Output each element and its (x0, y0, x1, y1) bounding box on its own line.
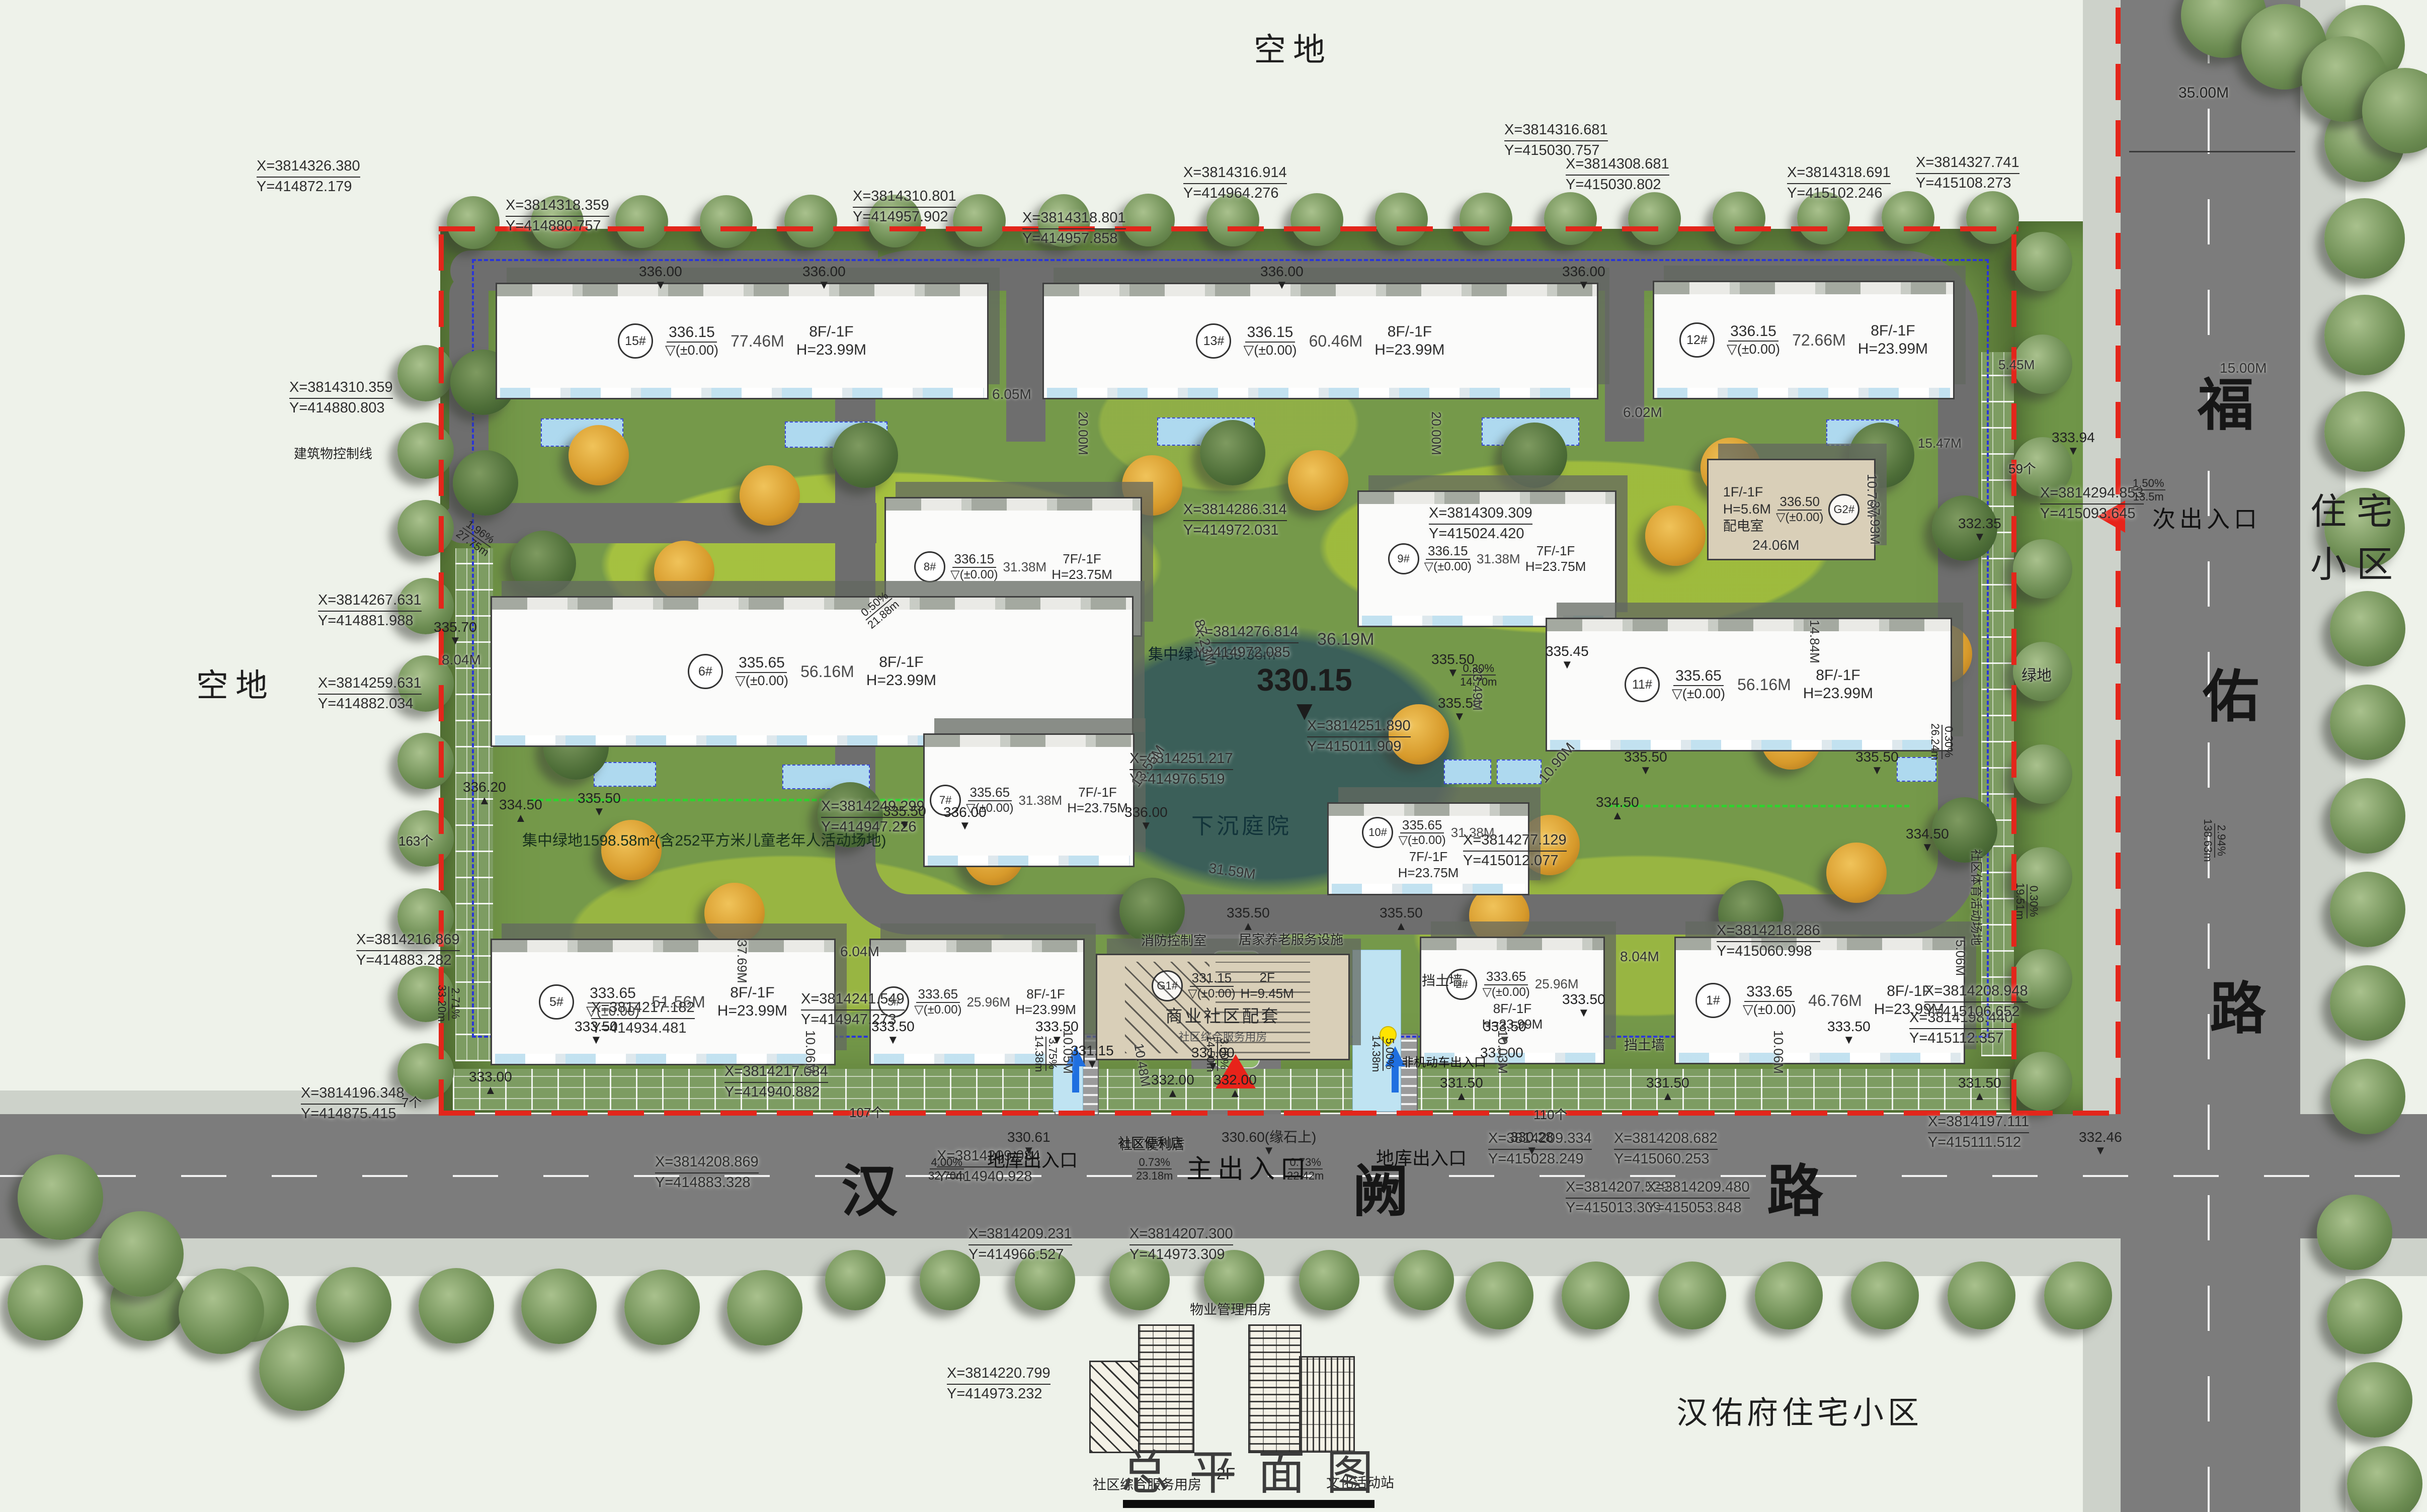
dimension-label: 14.84M (1807, 620, 1822, 663)
triangle-icon: ▲ (1958, 1090, 2001, 1103)
coord-x: X=3814251.890 (1307, 717, 1411, 737)
slope-annotation: 0.30%26.24m (1928, 723, 1955, 760)
label-community-store: 社区便利店 (1118, 1133, 1183, 1151)
building-height: H=5.6M (1723, 501, 1771, 517)
coord-x: X=3814326.380 (257, 157, 360, 178)
tree-icon (1966, 191, 2019, 244)
triangle-icon: ▲ (469, 1084, 512, 1097)
coordinate-callout: X=3814310.801Y=414957.902 (853, 187, 956, 226)
label-residential-right: 住宅小区 (2310, 482, 2427, 587)
tree-icon (521, 1269, 597, 1344)
building-height: H=23.99M (717, 1002, 787, 1019)
autumn-tree-icon (704, 883, 765, 943)
legend-swatch-property-1 (1138, 1324, 1194, 1453)
tree-icon (2317, 1195, 2392, 1270)
coord-x: X=3814316.681 (1504, 121, 1608, 141)
spot-level-value: 330.60(缘石上) (1222, 1129, 1316, 1145)
coordinate-callout: X=3814218.286Y=415060.998 (1717, 921, 1820, 961)
coord-y: Y=415012.077 (1463, 852, 1567, 871)
spot-level-value: 330.28 (1510, 1129, 1554, 1145)
dimension-label: 6.02M (1623, 404, 1662, 421)
coord-x: X=3814310.359 (289, 378, 393, 399)
autumn-tree-icon (1288, 450, 1348, 511)
tree-icon (397, 733, 454, 789)
coordinate-callout: X=3814216.869Y=414883.282 (356, 931, 460, 970)
tree-icon (2324, 198, 2405, 279)
spot-level: 331.50▲ (1646, 1075, 1689, 1103)
note-label: 物业管理用房 (1190, 1299, 1271, 1318)
slope-annotation: 0.73%23.18m (1136, 1156, 1173, 1183)
coordinate-callout: X=3814326.380Y=414872.179 (257, 157, 360, 196)
evergreen-tree-icon (1200, 420, 1265, 485)
building-zero-level: ▽(±0.00) (1482, 985, 1529, 999)
tree-icon (1122, 194, 1175, 246)
building-number-badge: 12# (1679, 322, 1715, 358)
dimension-label: 37.93M (1867, 501, 1883, 545)
building-zero-level: ▽(±0.00) (1727, 342, 1780, 357)
coord-x: X=3814286.314 (1183, 500, 1287, 521)
tree-icon (2330, 778, 2405, 854)
coordinate-callout: X=3814318.359Y=414880.757 (506, 196, 609, 235)
building-elevation: 333.65 (1484, 969, 1528, 985)
coord-x: X=3814207.300 (1129, 1225, 1233, 1245)
coord-y: Y=415060.253 (1614, 1150, 1718, 1169)
building-number-badge: 5# (539, 984, 574, 1020)
spot-level-value: 332.00 (1151, 1072, 1194, 1087)
coordinate-callout: X=3814220.799Y=414973.232 (947, 1364, 1050, 1403)
coord-x: X=3814217.182 (591, 998, 695, 1019)
slope-length: 138.63m (2201, 819, 2214, 862)
tree-icon (447, 196, 500, 249)
spot-level-value: 335.50 (883, 803, 926, 819)
road-name-fu: 福 (2198, 360, 2254, 441)
coord-y: Y=414966.527 (968, 1245, 1072, 1265)
triangle-icon: ▼ (1124, 819, 1168, 832)
building-zero-level: ▽(±0.00) (1672, 686, 1725, 702)
building-floors: 7F/-1F (1063, 551, 1101, 566)
coordinate-callout: X=3814327.741Y=415108.273 (1916, 153, 2019, 193)
autumn-tree-icon (1645, 506, 1706, 566)
spot-level: 333.50▼ (871, 1019, 915, 1047)
tree-icon (1628, 192, 1681, 245)
building-length: 56.16M (1737, 676, 1791, 694)
tree-icon (2013, 1052, 2072, 1111)
tree-icon (2044, 1262, 2112, 1329)
road-fuyou (2121, 0, 2300, 1512)
triangle-icon: ▲ (499, 812, 542, 824)
coord-y: Y=414940.882 (724, 1083, 828, 1102)
triangle-icon: ▼ (1546, 658, 1589, 671)
tree-icon (1562, 1262, 1630, 1329)
road-centerline-right (2208, 0, 2210, 1512)
spot-level-value: 336.00 (1260, 264, 1304, 279)
coord-x: X=3814241.549 (801, 990, 905, 1011)
coord-x: X=3814209.480 (1646, 1178, 1750, 1199)
coord-y: Y=414957.858 (1022, 229, 1126, 248)
note-label: 挡土墙 (1422, 970, 1463, 989)
dimension-label: 6.04M (840, 944, 879, 960)
triangle-icon: ▲ (1151, 1087, 1194, 1100)
tree-icon (2347, 1446, 2422, 1512)
road-name-lu: 路 (1767, 1146, 1823, 1227)
building-length: 77.46M (731, 332, 784, 351)
coord-x: X=3814310.801 (853, 187, 956, 208)
building-height: H=23.75M (1525, 559, 1586, 574)
triangle-icon: ▼ (2079, 1144, 2122, 1157)
note-label: 消防控制室 (1141, 931, 1206, 949)
spot-level: 335.50▲ (1227, 905, 1270, 933)
spot-level-value: 334.50 (1596, 794, 1639, 810)
triangle-icon: ▼ (1958, 531, 2001, 543)
coord-y: Y=415053.848 (1646, 1199, 1750, 1218)
building-number-badge: 8# (914, 551, 945, 582)
building-elevation: 336.15 (1426, 544, 1470, 560)
tree-icon (615, 195, 668, 248)
tree-icon (1544, 192, 1597, 245)
tree-icon (1713, 192, 1765, 244)
building-floors: 8F/-1F (879, 654, 923, 670)
tree-icon (2013, 539, 2072, 599)
spot-level-value: 333.94 (2052, 430, 2095, 445)
note-label: 7个 (401, 1093, 422, 1111)
coordinate-callout: X=3814308.681Y=415030.802 (1566, 155, 1669, 194)
evergreen-tree-icon (1502, 423, 1567, 488)
spot-level-value: 335.50 (578, 790, 621, 806)
coord-y: Y=414957.902 (853, 208, 956, 227)
building-number-badge: G2# (1828, 494, 1859, 525)
tree-icon (825, 1250, 885, 1310)
building-height: H=23.99M (1015, 1002, 1076, 1017)
building-elevation: 333.65 (1744, 983, 1795, 1002)
coord-y: Y=414964.276 (1183, 184, 1287, 203)
spot-level: 333.94▼ (2052, 430, 2095, 458)
spot-level-value: 334.50 (499, 797, 542, 812)
triangle-icon: ▼ (1510, 1144, 1554, 1157)
coord-x: X=3814218.286 (1717, 921, 1820, 942)
spot-level: 336.00▼ (802, 264, 846, 292)
building-length: 56.16M (800, 662, 854, 681)
building-elevation: 333.65 (916, 987, 960, 1003)
building-length: 31.38M (1018, 793, 1062, 808)
slope-percent: 2.94% (2214, 823, 2228, 858)
building-length: 72.66M (1792, 331, 1846, 350)
tree-icon (1466, 1262, 1533, 1329)
water-feature (1897, 757, 1936, 782)
coordinate-callout: X=3814259.631Y=414882.034 (318, 674, 422, 713)
spot-level-330-15: 330.15▼ (1257, 664, 1352, 725)
slope-annotation: 1.50%13.5m (2131, 477, 2165, 503)
coord-y: Y=415108.273 (1916, 174, 2019, 193)
spot-level: 331.15▼ (1071, 1043, 1114, 1071)
red-boundary-top (439, 226, 2018, 231)
triangle-icon: ▼ (943, 819, 987, 832)
tree-icon (397, 423, 454, 479)
label-hanyoufu-district: 汉佑府住宅小区 (1676, 1387, 1923, 1433)
building-floors: 8F/-1F (1026, 986, 1065, 1001)
tree-icon (8, 1265, 83, 1340)
slope-percent: 5.00% (1383, 1037, 1396, 1071)
spot-level-value: 331.50 (1958, 1075, 2001, 1090)
triangle-icon: ▲ (1440, 1090, 1483, 1103)
slope-length: 14.50m (1204, 1035, 1217, 1072)
building-number-badge: 13# (1196, 323, 1231, 359)
tree-icon (727, 1270, 802, 1346)
tree-icon (179, 1269, 264, 1354)
coord-y: Y=415011.909 (1307, 737, 1411, 757)
g2-length-label: 24.06M (1752, 537, 1799, 553)
triangle-icon: ▼ (2052, 445, 2095, 457)
coord-y: Y=415093.645 (2040, 505, 2144, 524)
slope-annotation: 0.30%19.51m (2013, 883, 2040, 919)
coord-x: X=3814309.309 (1429, 504, 1532, 525)
road-name-you: 佑 (2203, 651, 2259, 733)
building-zero-level: ▽(±0.00) (1243, 343, 1297, 358)
coord-x: X=3814197.111 (1928, 1113, 2029, 1133)
spot-level-value: 336.00 (1124, 804, 1168, 820)
coord-x: X=3814294.853 (2040, 484, 2144, 505)
coordinate-callout: X=3814208.869Y=414883.328 (655, 1153, 759, 1192)
spot-level: 332.00▲ (1151, 1072, 1194, 1100)
building-floors: 8F/-1F (730, 984, 774, 1001)
tree-icon (18, 1154, 103, 1240)
coord-y: Y=415112.357 (1909, 1029, 2013, 1048)
spot-level-value: 333.50 (1562, 991, 1605, 1007)
coord-y: Y=414882.034 (318, 695, 422, 714)
spot-level-value: 335.45 (1546, 643, 1589, 659)
building-height: H=23.75M (1398, 865, 1459, 880)
autumn-tree-icon (1826, 843, 1887, 903)
slope-length: 32.70m (928, 1169, 965, 1182)
triangle-icon: ▼ (1438, 710, 1481, 723)
slope-length: 26.24m (1928, 723, 1941, 760)
building-height: H=9.45M (1241, 986, 1294, 1001)
coord-y: Y=414875.415 (301, 1105, 405, 1124)
spot-level: 336.00▼ (639, 264, 682, 292)
dimension-label: 5.45M (1998, 357, 2035, 373)
label-garage-exit-left: 地库出入口 (987, 1146, 1078, 1172)
dimension-label: 10.06M (1770, 1030, 1786, 1074)
building-length: 25.96M (966, 994, 1010, 1010)
coord-y: Y=414972.031 (1183, 521, 1287, 540)
spot-level: 334.50▲ (1596, 795, 1639, 822)
spot-level: 330.28▼ (1510, 1130, 1554, 1157)
building-name: 配电室 (1723, 519, 1764, 534)
building-elevation: 336.50 (1777, 494, 1822, 511)
slope-percent: 4.00% (930, 1156, 964, 1169)
tree-icon (397, 345, 454, 401)
building-height: H=23.99M (1803, 685, 1873, 702)
coord-y: Y=415024.420 (1429, 525, 1532, 544)
dimension-label: 10.03M (1495, 1030, 1510, 1074)
coord-y: Y=415111.512 (1928, 1133, 2029, 1152)
spot-level-value: 334.50 (1906, 826, 1949, 842)
triangle-icon: ▼ (1260, 279, 1304, 291)
building-elevation: 335.65 (1673, 667, 1724, 686)
spot-level: 335.50▼ (578, 791, 621, 818)
coordinate-callout: X=3814318.691Y=415102.246 (1787, 163, 1891, 203)
triangle-icon: ▼ (575, 1034, 618, 1046)
tree-icon (2330, 872, 2405, 947)
spot-level-value: 331.50 (1440, 1075, 1483, 1090)
spot-level: 335.50▼ (1855, 749, 1899, 777)
tree-icon (1755, 1262, 1823, 1329)
green-line-east (1607, 805, 1909, 807)
dimension-label: 10.05M (1060, 1030, 1076, 1074)
water-feature (1497, 760, 1542, 784)
building-elevation: 336.15 (1245, 324, 1296, 343)
spot-level: 336.00▼ (1124, 805, 1168, 832)
building-elevation: 335.65 (968, 785, 1012, 801)
building-height: H=23.75M (1051, 567, 1112, 582)
spot-level: 333.50▼ (575, 1019, 618, 1047)
note-label: 110个 (1533, 1105, 1567, 1123)
slope-annotation: 0.30%14.70m (1460, 662, 1497, 689)
building-6: 6#335.65▽(±0.00)56.16M8F/-1FH=23.99M (491, 596, 1134, 747)
note-label: 建筑物控制线 (294, 444, 372, 462)
dimension-label: 10.06M (802, 1030, 818, 1074)
dimension-label: 36.19M (1317, 630, 1374, 649)
water-feature (1444, 760, 1491, 784)
coord-x: X=3814327.741 (1916, 153, 2019, 174)
evergreen-tree-icon (833, 423, 898, 488)
coord-y: Y=415102.246 (1787, 184, 1891, 203)
coord-y: Y=414883.328 (655, 1173, 759, 1193)
tree-icon (1375, 193, 1428, 245)
label-non-motor-entrance: 非机动车出入口 (1402, 1052, 1486, 1070)
triangle-icon: ▼ (1827, 1034, 1871, 1046)
red-boundary-bottom (439, 1111, 2124, 1116)
tree-icon (953, 194, 1006, 247)
spot-level-value: 336.00 (943, 804, 987, 820)
coordinate-callout: X=3814316.914Y=414964.276 (1183, 163, 1287, 203)
coord-y: Y=414881.988 (318, 612, 422, 631)
spot-level-value: 336.00 (1562, 264, 1605, 279)
slope-length: 23.18m (1136, 1169, 1173, 1182)
building-height: H=23.99M (796, 342, 866, 358)
spot-level-value: 332.46 (2079, 1129, 2122, 1145)
slope-annotation: 3.75%14.38m (1032, 1035, 1059, 1072)
building-13: 13#336.15▽(±0.00)60.46M8F/-1FH=23.99M (1042, 283, 1598, 399)
coordinate-callout: X=3814318.801Y=414957.858 (1022, 209, 1126, 248)
dim-line-road-width (2129, 151, 2295, 152)
slope-annotation: 2.71%33.20m (435, 985, 462, 1022)
road-name-han: 汉 (841, 1146, 898, 1227)
coordinate-callout: X=3814267.631Y=414881.988 (318, 591, 422, 630)
note-label: 绿地 (2021, 663, 2052, 685)
site-plan-canvas: 空地 空地 住宅小区 汉佑府住宅小区 汉 阙 路 福 佑 路 主出入口 次出入口… (0, 0, 2427, 1512)
spot-level-value: 331.15 (1071, 1043, 1114, 1058)
coord-y: Y=414880.803 (289, 399, 393, 418)
building-elevation: 335.65 (737, 654, 787, 673)
triangle-icon: ▼ (578, 805, 621, 818)
coord-x: X=3814316.914 (1183, 163, 1287, 184)
building-11: 11#335.65▽(±0.00)56.16M8F/-1FH=23.99M (1546, 618, 1952, 751)
spot-level-value: 333.50 (575, 1019, 618, 1034)
building-zero-level: ▽(±0.00) (1398, 833, 1445, 848)
tree-icon (1948, 1262, 2015, 1329)
spot-level: 336.00▼ (943, 805, 987, 832)
building-height: H=23.99M (1858, 341, 1928, 357)
tree-icon (700, 195, 753, 248)
building-number-badge: G1# (1152, 970, 1183, 1001)
coord-x: X=3814220.799 (947, 1364, 1050, 1385)
dimension-label: 8.04M (442, 652, 481, 668)
building-number-badge: 10# (1362, 817, 1393, 848)
tree-icon (2327, 1279, 2402, 1354)
spot-level-value: 336.00 (639, 264, 682, 279)
evergreen-tree-icon (511, 531, 576, 596)
building-floors: 8F/-1F (1493, 1001, 1532, 1016)
spot-level-value: 335.50 (1624, 749, 1667, 765)
coordinate-callout: X=3814208.682Y=415060.253 (1614, 1129, 1718, 1168)
spot-level-value: 336.00 (802, 264, 846, 279)
triangle-icon: ▼ (1071, 1058, 1114, 1070)
spot-level: 332.35▼ (1958, 516, 2001, 544)
building-number-badge: 15# (618, 323, 653, 359)
building-name: 商业社区配套 (1166, 1002, 1280, 1027)
tree-icon (1299, 1250, 1359, 1310)
building-length: 46.76M (1808, 991, 1862, 1010)
building-length: 31.38M (1003, 559, 1046, 575)
tree-icon (1394, 1250, 1454, 1310)
coord-y: Y=414880.757 (506, 217, 609, 236)
triangle-icon: ▲ (1380, 920, 1423, 933)
tree-icon (2330, 1059, 2405, 1134)
tree-icon (2337, 1362, 2412, 1438)
road-name-lu2: 路 (2210, 963, 2266, 1045)
coordinate-callout: X=3814294.853Y=415093.645 (2040, 484, 2144, 523)
slope-length: 33.20m (435, 985, 448, 1022)
tree-icon (1290, 193, 1343, 246)
dimension-label: 20.00M (1428, 411, 1444, 455)
triangle-icon: ▼ (434, 634, 477, 647)
spot-level: 335.50▼ (1624, 749, 1667, 777)
coord-x: X=3814196.348 (301, 1084, 405, 1105)
tree-icon (1851, 1262, 1919, 1329)
spot-level-value: 335.50 (1380, 905, 1423, 920)
autumn-tree-icon (569, 425, 629, 485)
building-elevation: 336.15 (952, 552, 997, 568)
red-boundary-road-edge (2116, 0, 2121, 1114)
label-sunken-courtyard: 下沉庭院 (1191, 808, 1292, 840)
building-zero-level: ▽(±0.00) (665, 343, 718, 358)
building-number-badge: 6# (688, 654, 723, 689)
slope-percent: 0.30% (2027, 884, 2040, 918)
coordinate-callout: X=3814209.480Y=415053.848 (1646, 1178, 1750, 1217)
building-elevation: 331.15 (1190, 971, 1234, 987)
spot-level-value: 336.20 (463, 779, 506, 795)
label-main-entrance: 主出入口 (1186, 1148, 1311, 1186)
spot-level-value: 333.50 (871, 1019, 915, 1034)
coord-y: Y=415030.802 (1566, 176, 1669, 195)
tree-icon (397, 1043, 454, 1100)
building-floors: 8F/-1F (809, 323, 853, 340)
dimension-label: 8.04M (1620, 949, 1659, 965)
slope-annotation: 2.94%138.63m (2201, 819, 2228, 862)
building-zero-level: ▽(±0.00) (1776, 511, 1823, 525)
slope-length: 19.51m (2013, 883, 2026, 919)
slope-percent: 0.30% (1941, 725, 1955, 759)
slope-annotation: 4.00%32.70m (928, 1156, 965, 1183)
building-number-badge: 11# (1625, 667, 1660, 702)
spot-level: 332.00▲ (1214, 1072, 1257, 1100)
building-zero-level: ▽(±0.00) (1188, 987, 1235, 1001)
coord-y: Y=414973.232 (947, 1385, 1050, 1404)
note-label: 107个 (849, 1103, 884, 1121)
building-zero-level: ▽(±0.00) (735, 673, 788, 689)
coordinate-callout: X=3814207.300Y=414973.309 (1129, 1225, 1233, 1264)
building-floors: 8F/-1F (1816, 667, 1860, 684)
